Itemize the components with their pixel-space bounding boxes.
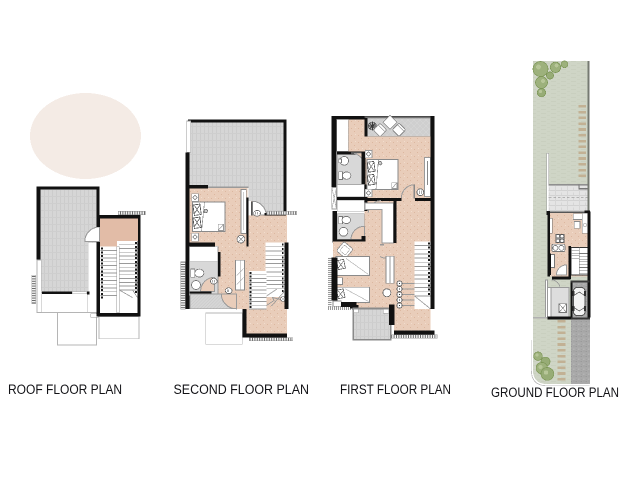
svg-text:SECOND FLOOR PLAN: SECOND FLOOR PLAN [174, 382, 310, 398]
svg-text:ROOF FLOOR PLAN: ROOF FLOOR PLAN [8, 382, 122, 398]
svg-text:FIRST FLOOR PLAN: FIRST FLOOR PLAN [340, 382, 451, 398]
svg-text:GROUND FLOOR PLAN: GROUND FLOOR PLAN [491, 385, 619, 401]
